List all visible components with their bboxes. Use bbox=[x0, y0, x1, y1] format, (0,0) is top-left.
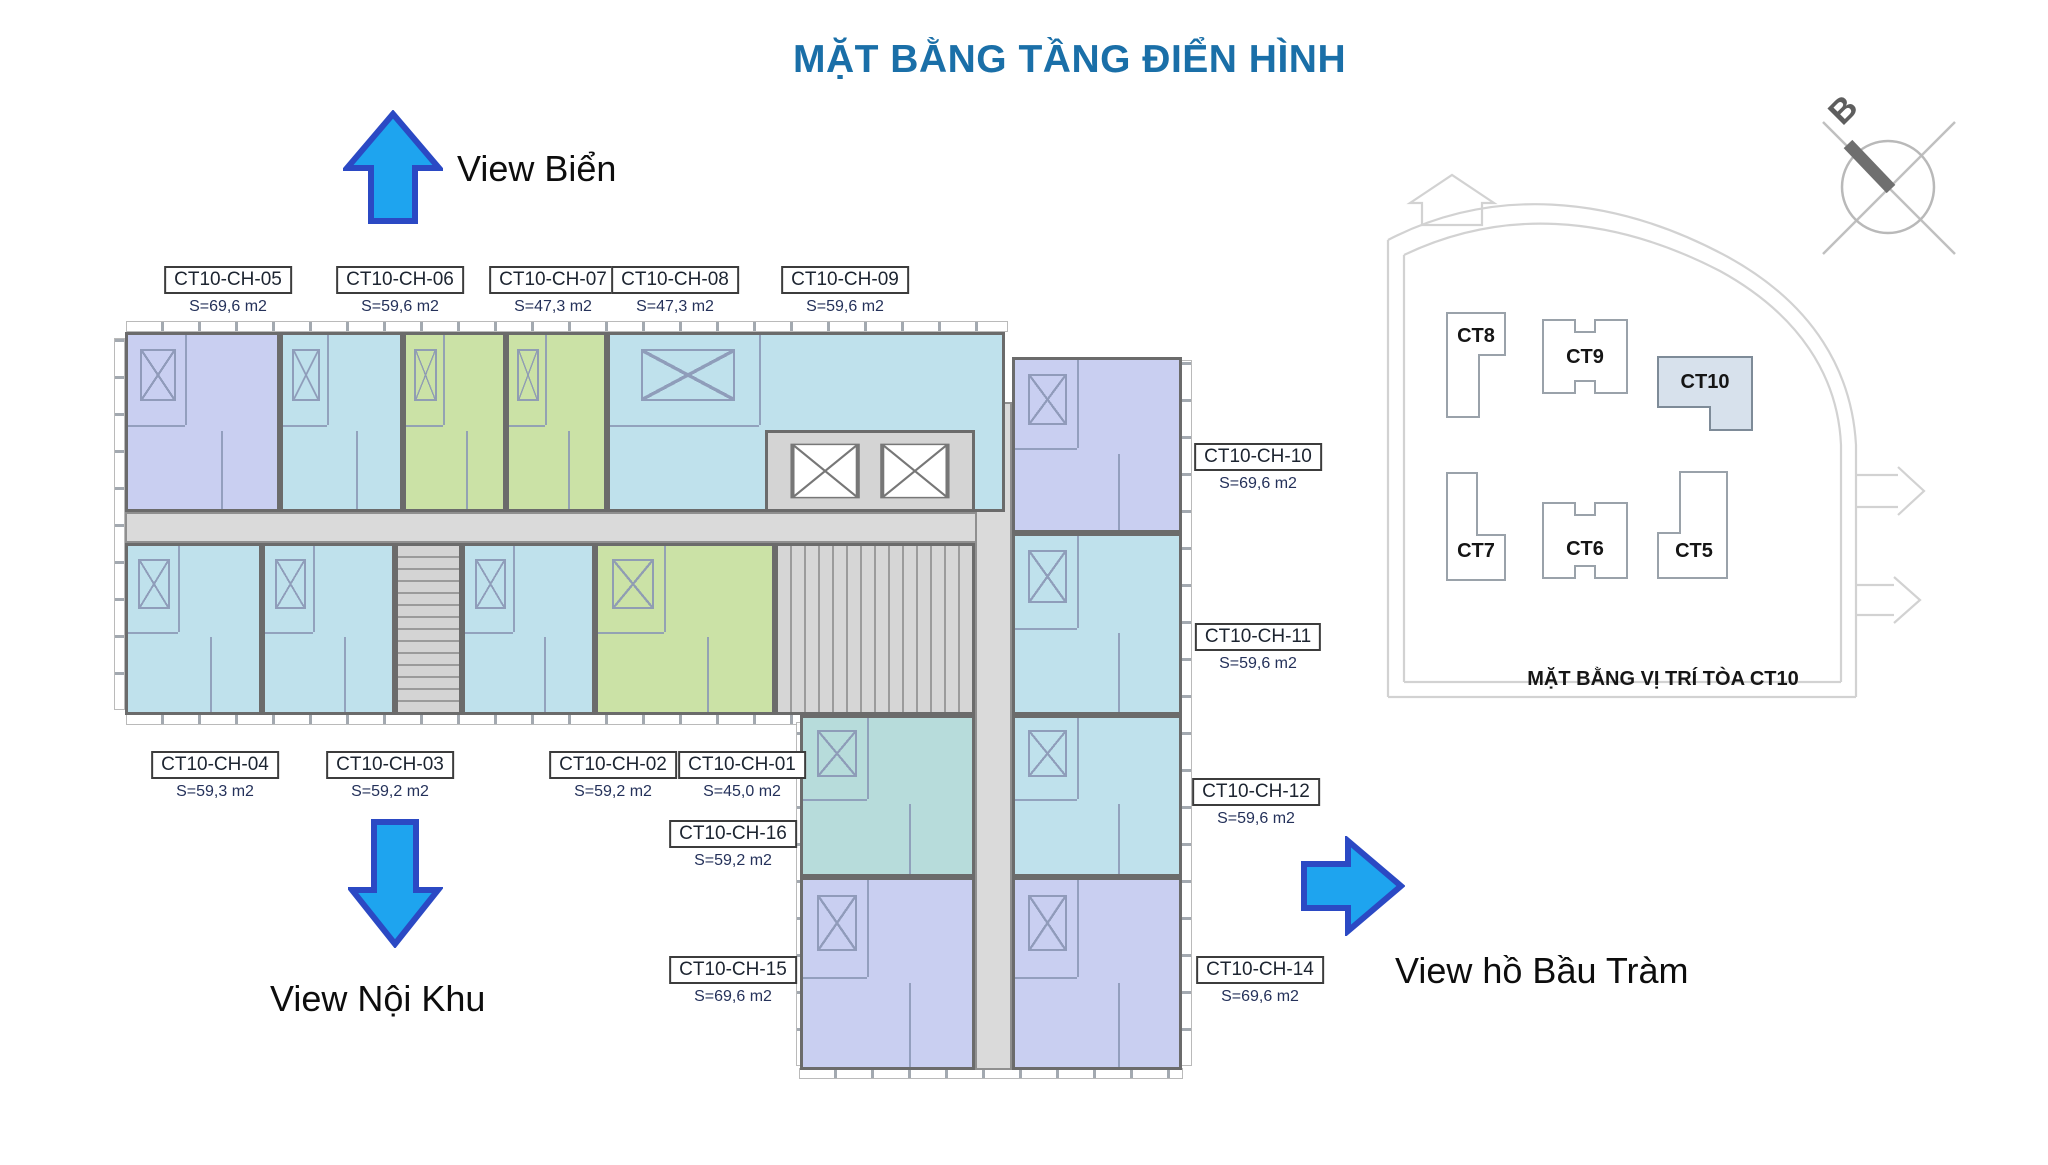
unit-label-ct10-ch-15: CT10-CH-15S=69,6 m2 bbox=[669, 956, 797, 1006]
unit-label-ct10-ch-07: CT10-CH-07S=47,3 m2 bbox=[489, 266, 617, 316]
unit-block-ct10-ch-11 bbox=[1012, 533, 1182, 715]
unit-label-ct10-ch-01: CT10-CH-01S=45,0 m2 bbox=[678, 751, 806, 801]
site-label-ct8: CT8 bbox=[1457, 325, 1495, 347]
unit-block-ct10-ch-02 bbox=[462, 543, 595, 715]
unit-block-ct10-ch-16 bbox=[800, 715, 975, 877]
sea-view-label: View Biển bbox=[457, 148, 616, 190]
unit-label-ct10-ch-10: CT10-CH-10S=69,6 m2 bbox=[1194, 443, 1322, 493]
window-band-bottom bbox=[126, 714, 802, 725]
unit-label-ct10-ch-02: CT10-CH-02S=59,2 m2 bbox=[549, 751, 677, 801]
unit-block-ct10-ch-15 bbox=[800, 877, 975, 1070]
unit-block-ct10-ch-03 bbox=[262, 543, 395, 715]
elevator-core bbox=[765, 430, 975, 512]
unit-label-ct10-ch-03: CT10-CH-03S=59,2 m2 bbox=[326, 751, 454, 801]
unit-block-ct10-ch-07 bbox=[403, 332, 506, 512]
inner-area-view-label: View Nội Khu bbox=[270, 978, 485, 1020]
unit-label-ct10-ch-12: CT10-CH-12S=59,6 m2 bbox=[1192, 778, 1320, 828]
window-band-right bbox=[1181, 360, 1192, 1066]
lake-view-arrow-icon bbox=[1300, 836, 1405, 936]
site-label-ct7: CT7 bbox=[1457, 540, 1495, 562]
page-title: MẶT BẰNG TẦNG ĐIỂN HÌNH bbox=[793, 38, 1346, 82]
unit-label-ct10-ch-08: CT10-CH-08S=47,3 m2 bbox=[611, 266, 739, 316]
site-building-ct7 bbox=[1447, 473, 1505, 580]
unit-block-ct10-ch-10 bbox=[1012, 357, 1182, 533]
unit-block-ct10-ch-01 bbox=[595, 543, 775, 715]
site-building-ct5 bbox=[1658, 472, 1727, 578]
inner-area-view-arrow-icon bbox=[348, 818, 443, 948]
unit-block-ct10-ch-12 bbox=[1012, 715, 1182, 877]
window-band-left bbox=[114, 338, 125, 710]
unit-block-ct10-ch-14 bbox=[1012, 877, 1182, 1070]
unit-label-ct10-ch-06: CT10-CH-06S=59,6 m2 bbox=[336, 266, 464, 316]
lake-view-label: View hồ Bầu Tràm bbox=[1395, 950, 1688, 992]
unit-label-ct10-ch-04: CT10-CH-04S=59,3 m2 bbox=[151, 751, 279, 801]
unit-label-ct10-ch-14: CT10-CH-14S=69,6 m2 bbox=[1196, 956, 1324, 1006]
floor-plan-page: MẶT BẰNG TẦNG ĐIỂN HÌNH View Biển View N… bbox=[0, 0, 2048, 1165]
site-label-ct6: CT6 bbox=[1566, 538, 1604, 560]
site-building-ct10-highlighted bbox=[1658, 357, 1752, 430]
site-label-ct5: CT5 bbox=[1675, 540, 1713, 562]
stair-elevator-core bbox=[775, 543, 975, 715]
unit-block-ct10-ch-05 bbox=[125, 332, 280, 512]
site-label-ct10: CT10 bbox=[1681, 371, 1730, 393]
sea-view-arrow-icon bbox=[343, 110, 443, 225]
corridor-horizontal bbox=[125, 512, 1010, 543]
site-label-ct9: CT9 bbox=[1566, 346, 1604, 368]
elevator-icon bbox=[768, 433, 972, 509]
unit-block-ct10-ch-04 bbox=[125, 543, 262, 715]
compass-needle bbox=[1848, 144, 1891, 189]
unit-label-ct10-ch-09: CT10-CH-09S=59,6 m2 bbox=[781, 266, 909, 316]
unit-label-ct10-ch-05: CT10-CH-05S=69,6 m2 bbox=[164, 266, 292, 316]
window-band-top bbox=[126, 321, 1008, 332]
unit-block-ct10-ch-06 bbox=[280, 332, 403, 512]
site-map-caption: MẶT BẰNG VỊ TRÍ TÒA CT10 bbox=[1498, 668, 1828, 691]
unit-block-ct10-ch-08 bbox=[506, 332, 607, 512]
stair-core bbox=[395, 543, 462, 715]
compass-icon: B bbox=[1815, 78, 2025, 263]
unit-label-ct10-ch-11: CT10-CH-11S=59,6 m2 bbox=[1195, 623, 1321, 673]
unit-label-ct10-ch-16: CT10-CH-16S=59,2 m2 bbox=[669, 820, 797, 870]
